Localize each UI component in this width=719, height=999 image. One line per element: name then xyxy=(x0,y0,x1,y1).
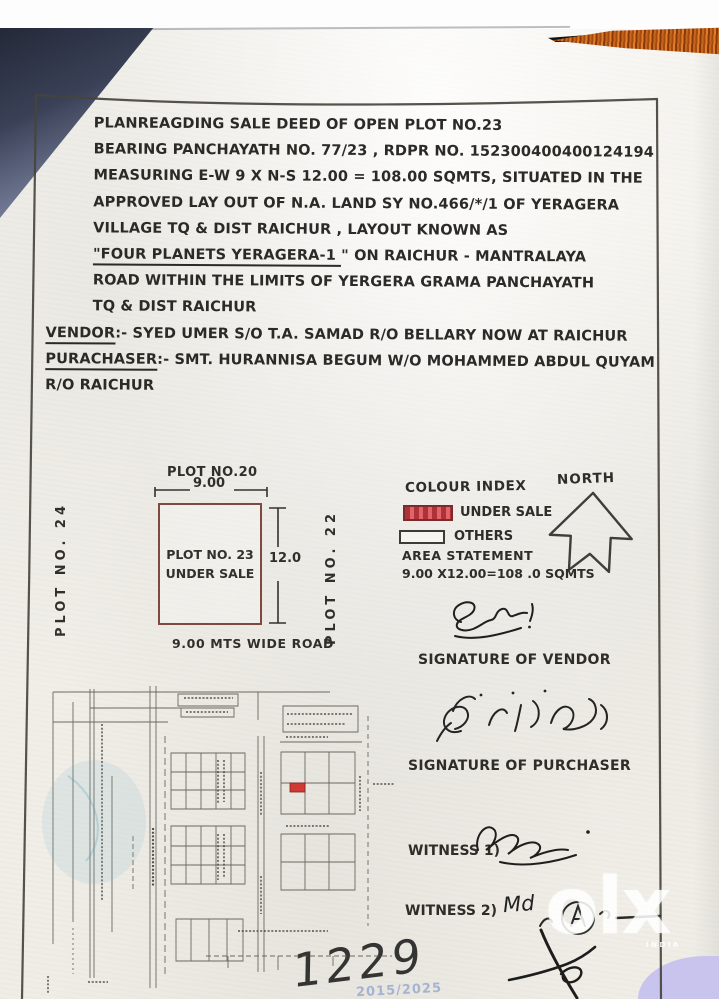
area-statement-value: 9.00 X12.00=108 .0 SQMTS xyxy=(402,566,595,581)
layout-name-underlined: "FOUR PLANETS YERAGERA-1 xyxy=(93,246,341,267)
witness2-handwriting: Md xyxy=(502,891,535,917)
others-label: OTHERS xyxy=(454,529,513,544)
vendor-signature-caption: SIGNATURE OF VENDOR xyxy=(418,652,611,668)
vendor-line: VENDOR:- SYED UMER S/O T.A. SAMAD R/O BE… xyxy=(45,320,667,350)
others-swatch xyxy=(399,530,445,544)
north-arrow-icon xyxy=(541,486,645,577)
deed-line-4: APPROVED LAY OUT OF N.A. LAND SY NO.466/… xyxy=(93,189,668,219)
scanned-sale-deed-page: PLANREAGDING SALE DEED OF OPEN PLOT NO.2… xyxy=(0,0,719,999)
purchaser-label: PURACHASER xyxy=(45,351,157,371)
dimension-top-value: 9.00 xyxy=(193,476,225,491)
deed-line-8: TQ & DIST RAICHUR xyxy=(93,294,668,324)
vendor-value: :- SYED UMER S/O T.A. SAMAD R/O BELLARY … xyxy=(115,325,628,344)
deed-line-3: MEASURING E-W 9 X N-S 12.00 = 108.00 SQM… xyxy=(93,163,668,193)
colour-index-title: COLOUR INDEX xyxy=(405,478,527,496)
plot-23-label: PLOT NO. 23 UNDER SALE xyxy=(160,545,260,583)
deed-line-1: PLANREAGDING SALE DEED OF OPEN PLOT NO.2… xyxy=(94,110,669,140)
plot-23-outline: PLOT NO. 23 UNDER SALE xyxy=(158,503,262,625)
plot-22-label: PLOT NO. 22 xyxy=(324,510,339,645)
plot-23-line1: PLOT NO. 23 xyxy=(160,545,260,564)
map-under-sale-plot xyxy=(290,783,305,792)
colour-index-panel: COLOUR INDEX NORTH UNDER SALE OTHERS ARE… xyxy=(395,455,719,795)
deed-line-7: ROAD WITHIN THE LIMITS OF YERGERA GRAMA … xyxy=(93,268,668,298)
deed-line-2: BEARING PANCHAYATH NO. 77/23 , RDPR NO. … xyxy=(94,137,669,167)
scan-top-strip xyxy=(0,0,719,29)
purchaser-signature xyxy=(433,683,618,758)
under-sale-label: UNDER SALE xyxy=(460,505,552,520)
right-dimension-bracket xyxy=(263,505,291,627)
dimension-right-value: 12.0 xyxy=(269,551,301,566)
site-layout-map xyxy=(28,676,396,999)
vendor-signature xyxy=(447,596,539,644)
purchaser-signature-caption: SIGNATURE OF PURCHASER xyxy=(408,758,631,774)
purchaser-value: :- SMT. HURANNISA BEGUM W/O MOHAMMED ABD… xyxy=(157,352,655,371)
area-statement-title: AREA STATEMENT xyxy=(402,548,533,563)
layout-title-rest: " ON RAICHUR - MANTRALAYA xyxy=(341,248,586,265)
north-label: NORTH xyxy=(557,470,616,488)
purchaser-line-2: R/O RAICHUR xyxy=(45,372,667,402)
deed-line-5: VILLAGE TQ & DIST RAICHUR , LAYOUT KNOWN… xyxy=(93,215,668,245)
under-sale-swatch xyxy=(403,505,453,521)
olx-watermark: olx xyxy=(545,862,670,952)
purchaser-line: PURACHASER:- SMT. HURANNISA BEGUM W/O MO… xyxy=(45,346,667,376)
deed-text-block: PLANREAGDING SALE DEED OF OPEN PLOT NO.2… xyxy=(45,110,669,402)
olx-watermark-country: INDIA xyxy=(646,941,681,949)
plot-23-line2: UNDER SALE xyxy=(160,564,260,583)
road-label: 9.00 MTS WIDE ROAD xyxy=(172,636,334,651)
plot-24-label: PLOT NO. 24 xyxy=(54,502,69,637)
vendor-label: VENDOR xyxy=(45,325,115,344)
deed-layout-title-line: "FOUR PLANETS YERAGERA-1 " ON RAICHUR - … xyxy=(93,241,668,271)
witness2-label: WITNESS 2) xyxy=(405,903,497,919)
